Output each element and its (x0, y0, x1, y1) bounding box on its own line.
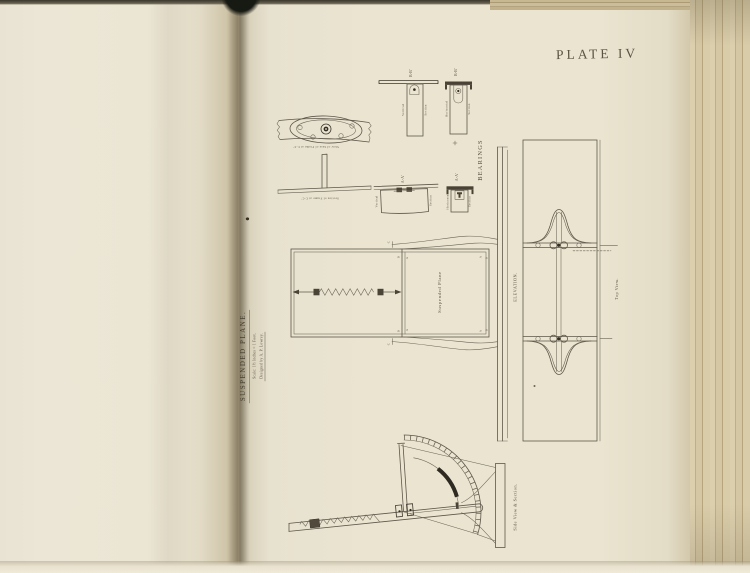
aa-label: A-A' (401, 175, 405, 183)
ink-blemish (246, 217, 249, 220)
plate-drawing: SUSPENDED PLANE. Scale: 1½ Inches = 1 Fo… (0, 0, 750, 573)
corner-letter: A (479, 255, 483, 258)
corner-letter: A (405, 256, 409, 259)
aa2-left-caption: Horizontal (446, 193, 450, 209)
aa-right-caption: Section (429, 195, 433, 206)
aa-label-2: A-A' (455, 173, 459, 181)
plate-title: SUSPENDED PLANE. (239, 311, 247, 402)
bearings-label: BEARINGS (477, 139, 484, 181)
scale-line: Scale: 1½ Inches = 1 Foot. (253, 333, 257, 379)
corner-letter: B (485, 257, 489, 259)
base-view-drawing: View of base of Frame at C-C' (277, 115, 371, 149)
aa2-right-caption: Section (468, 196, 472, 207)
top-view-label: Top View. (614, 278, 619, 300)
section-bb-horizontal: B-B' Horizontal Section (445, 68, 473, 134)
bb2-left-caption: Horizontal (445, 101, 449, 117)
section-bb-vertical: B-B' Vertical Section (379, 69, 438, 136)
corner-letter: B (397, 256, 401, 258)
bb2-right-caption: Section (467, 103, 471, 114)
bb-label: B-B' (409, 69, 413, 77)
elevation-label: ELEVATION. (513, 272, 518, 301)
section-aa-horizontal: A-A' Horizontal Section (446, 173, 474, 212)
corner-letter: A (479, 329, 483, 332)
frame-section-drawing: Section of Frame at C-C' (278, 154, 371, 200)
title-block: SUSPENDED PLANE. Scale: 1½ Inches = 1 Fo… (239, 217, 265, 403)
bb-right-caption: Section (424, 104, 428, 115)
corner-letter: B (397, 330, 401, 332)
aa-left-caption: Vertical (375, 196, 379, 208)
book-photo: PLATE IV SUSPENDED PLANE. Scale: 1½ Inch… (0, 0, 750, 573)
side-view-label: Side View & Section. (513, 483, 518, 530)
section-aa-vertical: A-A' Vertical Section (374, 175, 438, 214)
base-view-label: View of base of Frame at C-C' (293, 145, 339, 149)
corner-letter: A (405, 328, 409, 331)
register-mark (453, 141, 457, 145)
c-mark: C (387, 241, 391, 243)
top-view-drawing: Top View. (523, 140, 619, 441)
bb-left-caption: Vertical (401, 104, 405, 116)
side-view-drawing: Side View & Section. (289, 435, 518, 548)
bb-label-2: B-B' (454, 68, 458, 76)
suspended-plane-label: Suspended Plane (437, 271, 442, 313)
credit-line: Designed by A. P. Lowrey. (260, 333, 264, 379)
frame-section-label: Section of Frame at C-C' (301, 197, 339, 201)
corner-letter: B (485, 329, 489, 331)
c-mark: C (387, 343, 391, 345)
